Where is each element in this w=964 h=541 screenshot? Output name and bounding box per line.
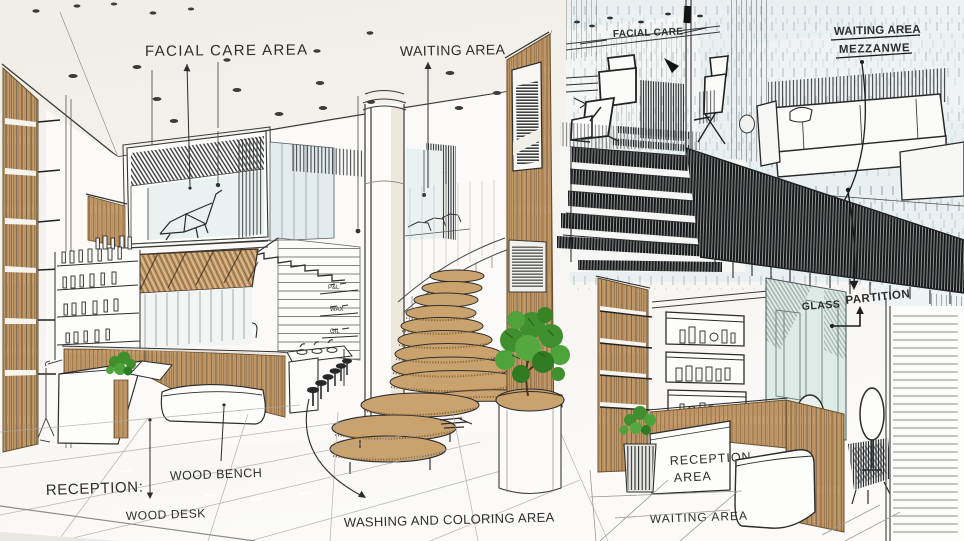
svg-text:FACIAL CARE AREA: FACIAL CARE AREA xyxy=(145,42,309,60)
svg-text:P&L: P&L xyxy=(328,285,340,291)
svg-text:OIL: OIL xyxy=(330,329,340,335)
svg-text:WAX: WAX xyxy=(330,307,343,313)
svg-text:WOOD DESK: WOOD DESK xyxy=(126,506,207,523)
svg-text:RECEPTION:: RECEPTION: xyxy=(46,479,144,499)
svg-text:AREA: AREA xyxy=(673,469,712,485)
svg-text:WAITING AREA: WAITING AREA xyxy=(400,41,506,59)
